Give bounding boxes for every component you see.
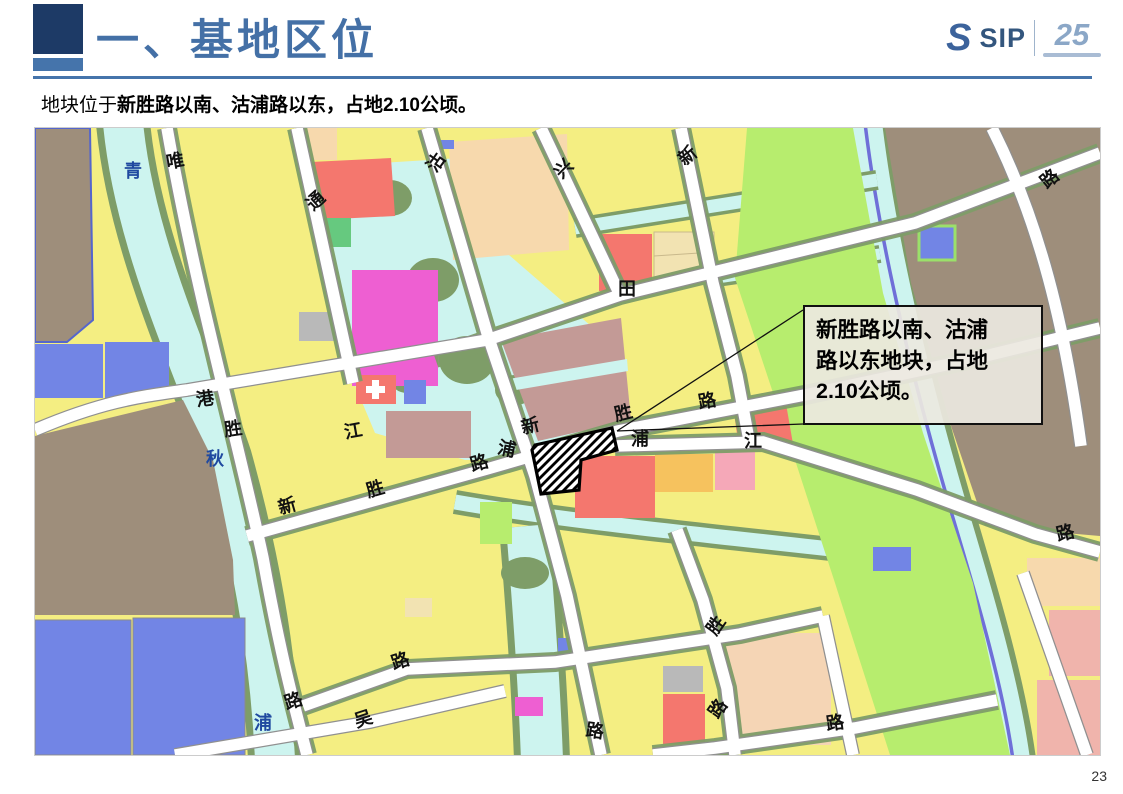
slide-subtitle: 地块位于新胜路以南、沽浦路以东，占地2.10公顷。 <box>41 90 477 117</box>
road-label-田: 田 <box>618 275 636 301</box>
road-label-兴: 兴 <box>547 152 578 183</box>
river-label-秋: 秋 <box>206 445 224 471</box>
page-number: 23 <box>1091 768 1107 784</box>
road-label-路: 路 <box>584 716 605 744</box>
road-label-路: 路 <box>1053 517 1077 547</box>
page-title: 一、基地区位 <box>96 6 378 68</box>
site-callout: 新胜路以南、沽浦 路以东地块，占地 2.10公顷。 <box>803 305 1043 425</box>
road-label-沽: 沽 <box>419 147 451 177</box>
map-label-layer: 唯通沽兴新路田港胜江新胜路浦新胜路浦江路胜路路吴路路路青秋浦 <box>35 128 1100 755</box>
title-accent-square <box>33 4 83 54</box>
sip-logo: S SIP 25 <box>946 14 1101 62</box>
road-label-浦: 浦 <box>495 433 518 462</box>
road-label-通: 通 <box>300 184 331 215</box>
road-label-路: 路 <box>1034 162 1065 193</box>
road-label-路: 路 <box>467 447 491 477</box>
title-divider <box>33 76 1092 79</box>
callout-line3: 2.10公顷。 <box>816 379 922 403</box>
road-label-路: 路 <box>824 708 845 736</box>
road-label-路: 路 <box>696 386 718 415</box>
road-label-新: 新 <box>672 139 703 170</box>
road-label-路: 路 <box>387 645 412 675</box>
road-label-吴: 吴 <box>350 703 375 733</box>
road-label-江: 江 <box>744 427 762 453</box>
road-label-江: 江 <box>342 416 364 445</box>
title-accent-bar <box>33 58 83 71</box>
river-label-青: 青 <box>124 157 142 183</box>
subtitle-bold: 新胜路以南、沽浦路以东，占地2.10公顷。 <box>117 95 477 116</box>
zoning-map: 唯通沽兴新路田港胜江新胜路浦新胜路浦江路胜路路吴路路路青秋浦 新胜路以南、沽浦 … <box>35 128 1100 755</box>
road-label-路: 路 <box>701 693 733 723</box>
road-label-新: 新 <box>275 490 299 520</box>
road-label-胜: 胜 <box>222 414 243 442</box>
callout-line1: 新胜路以南、沽浦 <box>816 318 988 342</box>
sip-anniversary: 25 <box>1043 19 1101 57</box>
road-label-胜: 胜 <box>363 473 387 503</box>
sip-anniversary-caption <box>1043 53 1101 57</box>
sip-swoosh-icon: S <box>946 19 971 57</box>
road-label-胜: 胜 <box>699 610 731 640</box>
road-label-胜: 胜 <box>611 397 635 427</box>
road-label-唯: 唯 <box>164 146 186 175</box>
callout-line2: 路以东地块，占地 <box>816 349 988 373</box>
road-label-新: 新 <box>518 410 542 440</box>
road-label-港: 港 <box>194 384 215 412</box>
sip-anniversary-25: 25 <box>1055 19 1089 50</box>
road-label-路: 路 <box>280 685 305 715</box>
subtitle-prefix: 地块位于 <box>41 95 117 116</box>
sip-logo-text: SIP <box>979 23 1026 54</box>
river-label-浦: 浦 <box>254 709 272 735</box>
sip-logo-divider <box>1034 20 1035 56</box>
road-label-浦: 浦 <box>631 425 649 451</box>
